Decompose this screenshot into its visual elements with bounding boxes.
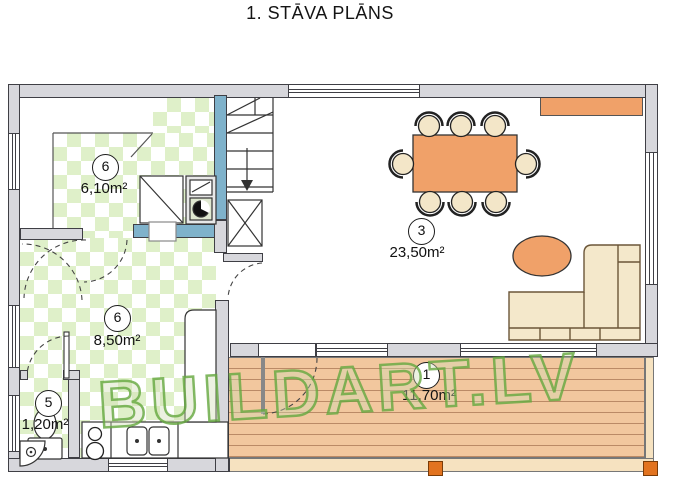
room-area-hall: 8,50m² (94, 332, 141, 349)
wall-wc-top-a (20, 370, 28, 380)
window-right-living (645, 152, 658, 285)
window-left-hall (8, 305, 20, 368)
room-area-wc: 1,20m² (22, 416, 69, 433)
sofa (509, 245, 640, 340)
room-number-hall: 6 (104, 305, 131, 332)
room-number-wc: 5 (35, 390, 62, 417)
room-number-bathroom: 6 (92, 154, 119, 181)
plumbing-wall-stairs (214, 95, 227, 220)
window-left-bathroom (8, 133, 20, 190)
dining-chairs (390, 112, 540, 215)
bathroom-tile-floor-upper (153, 98, 215, 133)
room-area-bathroom: 6,10m² (81, 180, 128, 197)
wall-stub-closet (223, 253, 263, 262)
terrace-post (428, 461, 443, 476)
bathroom-tile-floor (53, 133, 215, 238)
page-title: 1. STĀVA PLĀNS (246, 3, 394, 24)
coffee-table (513, 236, 571, 276)
kitchen-counter-top (540, 95, 643, 116)
window-left-wc (8, 395, 20, 452)
window-top (288, 84, 420, 98)
wall-stair-cap (214, 220, 227, 253)
room-area-living: 23,50m² (389, 244, 444, 261)
room-number-living: 3 (408, 218, 435, 245)
stairs (227, 98, 273, 192)
floor-plan-canvas: 1. STĀVA PLĀNS (0, 0, 700, 477)
wall-wc-top-b (63, 370, 80, 380)
wall-bathroom-hall (20, 228, 83, 240)
terrace-edge-right (645, 357, 654, 472)
terrace-post (643, 461, 658, 476)
dining-table (413, 135, 517, 192)
plumbing-wall-horizontal (133, 224, 218, 238)
window-bottom-kitchen (108, 458, 168, 472)
wall-wc-right (68, 378, 80, 458)
wardrobe (228, 200, 262, 246)
